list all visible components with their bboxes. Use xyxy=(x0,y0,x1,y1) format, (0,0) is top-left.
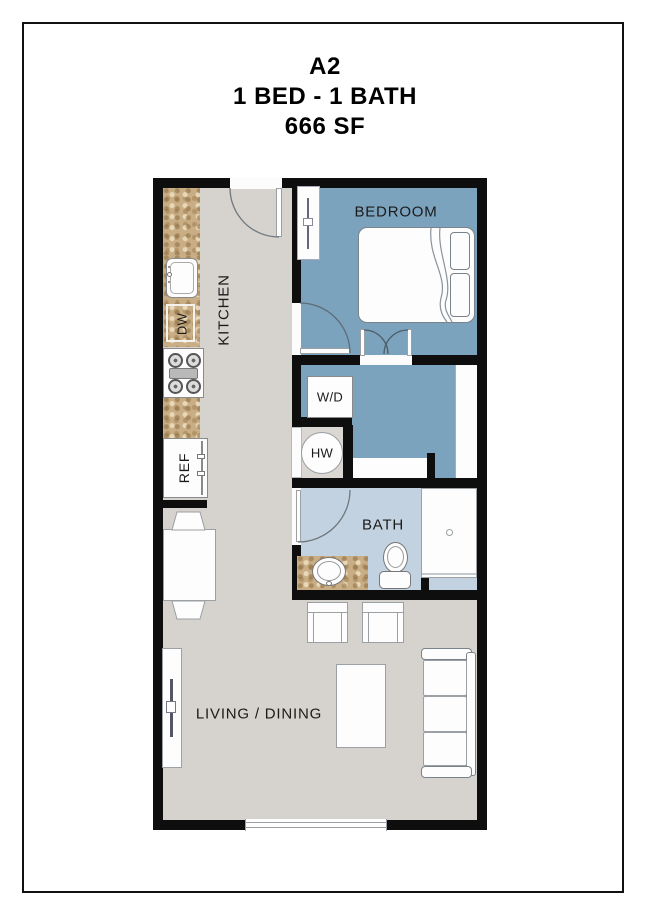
stool xyxy=(362,602,404,643)
stove-burner-icon xyxy=(186,379,201,394)
stove-burner-icon xyxy=(186,353,201,368)
utility-chase xyxy=(455,365,477,478)
refrigerator-handle-icon xyxy=(197,471,205,476)
plan-beds-baths: 1 BED - 1 BATH xyxy=(25,82,625,112)
kitchen-counter-mid xyxy=(163,397,200,438)
sofa-back xyxy=(466,652,476,776)
living-window xyxy=(245,819,387,831)
oven-element-icon xyxy=(169,368,198,379)
kitchen-label: KITCHEN xyxy=(216,274,233,345)
sofa-arm-bottom xyxy=(421,766,472,778)
water-heater-label: HW xyxy=(311,446,333,461)
plan-title-block: A2 1 BED - 1 BATH 666 SF xyxy=(25,52,625,142)
toilet-bowl-inner xyxy=(387,546,404,568)
bedroom-label: BEDROOM xyxy=(354,204,437,221)
vanity-faucet-icon xyxy=(326,581,332,586)
stool-arm-left xyxy=(368,613,369,642)
plan-code: A2 xyxy=(25,52,625,82)
stove-burner-icon xyxy=(168,379,183,394)
wall-bath-south xyxy=(292,590,487,600)
stove xyxy=(163,348,204,398)
bedroom-door-leaf xyxy=(300,348,350,354)
toilet-tank xyxy=(379,571,411,589)
wall-laundry-nook-v xyxy=(343,425,353,483)
dining-table xyxy=(163,529,216,601)
closet-slider-handle xyxy=(303,218,313,226)
shower-curb-line xyxy=(422,573,476,575)
closet-door-opening xyxy=(360,355,412,365)
dishwasher-label: DW xyxy=(175,313,190,335)
tv-console xyxy=(162,648,182,768)
wall-shower-stub xyxy=(421,578,429,592)
entry-door-leaf xyxy=(276,188,282,237)
bedroom-closet-panel xyxy=(297,186,320,260)
kitchen-faucet-dot-bottom xyxy=(168,281,170,283)
kitchen-counter-upper xyxy=(163,188,200,257)
washer-dryer-label: W/D xyxy=(317,390,343,405)
laundry-alcove xyxy=(352,458,427,478)
kitchen-faucet-dot-top xyxy=(168,266,170,268)
bath-door-leaf xyxy=(296,490,301,542)
wall-top xyxy=(153,178,487,188)
living-dining-label: LIVING / DINING xyxy=(196,706,322,723)
bath-label: BATH xyxy=(362,517,404,534)
shower-drain-icon xyxy=(446,529,453,536)
shower xyxy=(421,488,477,578)
bed-pillow xyxy=(450,232,470,270)
vanity-sink-basin xyxy=(317,561,341,581)
stove-burner-icon xyxy=(168,353,183,368)
sofa-cushion xyxy=(423,660,467,696)
kitchen-sink-basin xyxy=(170,262,194,294)
sofa-cushion xyxy=(423,696,467,732)
closet-door-leaf-right xyxy=(407,329,412,356)
refrigerator-door-split xyxy=(201,441,203,495)
refrigerator-label: REF xyxy=(176,453,192,483)
refrigerator-handle-icon xyxy=(197,454,205,459)
wall-right xyxy=(477,178,487,830)
entry-door-opening xyxy=(230,177,282,189)
stool-arm-left xyxy=(313,613,314,642)
coffee-table xyxy=(336,664,386,748)
kitchen-sink xyxy=(166,258,198,298)
kitchen-faucet-icon xyxy=(167,272,172,277)
closet-door-leaf-left xyxy=(360,329,365,356)
floorplan-page: A2 1 BED - 1 BATH 666 SF DW REF xyxy=(0,0,650,919)
stool xyxy=(307,602,348,643)
sofa-arm-top xyxy=(421,648,472,660)
stool-arm-right xyxy=(341,613,342,642)
wall-bath-north xyxy=(292,478,487,488)
stool-arm-right xyxy=(397,613,398,642)
plan-area: 666 SF xyxy=(25,112,625,142)
wall-kitchen-stub xyxy=(153,500,207,508)
wall-laundry-stub xyxy=(427,453,435,483)
sofa-cushion xyxy=(423,732,467,766)
tv-mount-icon xyxy=(166,701,176,713)
bed-pillow xyxy=(450,273,470,317)
